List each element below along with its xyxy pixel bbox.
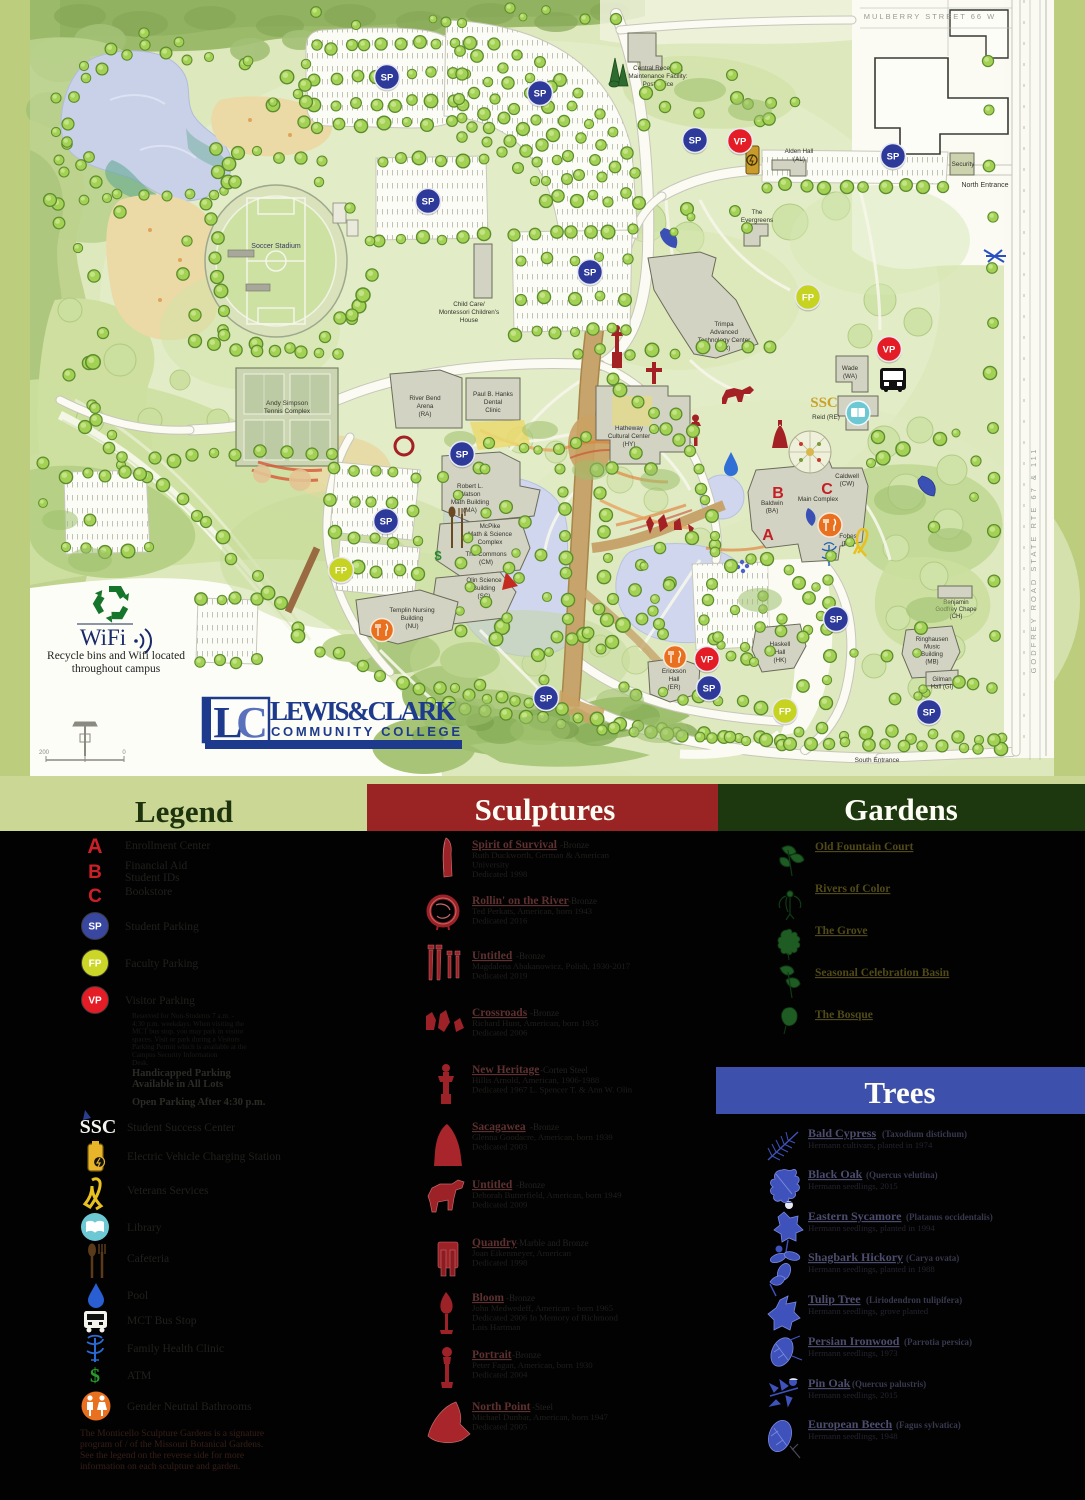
svg-text:-Marble and Bronze: -Marble and Bronze bbox=[516, 1238, 588, 1248]
svg-text:The Grove: The Grove bbox=[815, 925, 868, 937]
svg-text:program of / of the Missouri B: program of / of the Missouri Botanical G… bbox=[80, 1439, 263, 1450]
svg-text:Richard Hunt, American, born 1: Richard Hunt, American, born 1935 bbox=[472, 1018, 599, 1028]
svg-text:SP: SP bbox=[381, 73, 394, 84]
svg-text:-Bronze: -Bronze bbox=[530, 1122, 559, 1132]
svg-text:Black Oak: Black Oak bbox=[808, 1167, 863, 1181]
svg-text:Trees: Trees bbox=[864, 1075, 935, 1110]
svg-text:throughout campus: throughout campus bbox=[72, 663, 161, 675]
svg-text:-Bronze: -Bronze bbox=[516, 951, 545, 961]
svg-text:Sculptures: Sculptures bbox=[475, 792, 616, 827]
svg-text:-Bronze: -Bronze bbox=[512, 1350, 541, 1360]
svg-text:(Fagus sylvatica): (Fagus sylvatica) bbox=[896, 1420, 961, 1430]
svg-text:FP: FP bbox=[779, 707, 792, 718]
svg-text:Hall (GI): Hall (GI) bbox=[931, 684, 954, 691]
svg-text:Arena: Arena bbox=[417, 403, 434, 410]
svg-text:European Beech: European Beech bbox=[808, 1417, 892, 1431]
svg-text:-Bronze: -Bronze bbox=[506, 1293, 535, 1303]
svg-text:SSC: SSC bbox=[80, 1116, 117, 1138]
svg-text:Baldwin: Baldwin bbox=[761, 500, 784, 507]
svg-text:Legend: Legend bbox=[135, 794, 233, 829]
svg-text:Reid (RE): Reid (RE) bbox=[812, 414, 840, 421]
svg-text:McPike: McPike bbox=[480, 523, 501, 530]
svg-text:-Bronze: -Bronze bbox=[560, 840, 589, 850]
svg-text:-Bronze: -Bronze bbox=[568, 896, 597, 906]
svg-text:Hermann cultivars, planted in: Hermann cultivars, planted in 1974 bbox=[808, 1140, 933, 1150]
svg-text:House: House bbox=[460, 317, 479, 324]
svg-text:200: 200 bbox=[39, 750, 50, 756]
svg-text:Dedicated 2019: Dedicated 2019 bbox=[472, 971, 528, 981]
svg-text:Michael Dunbar, American, born: Michael Dunbar, American, born 1947 bbox=[472, 1412, 609, 1422]
svg-text:SSC: SSC bbox=[810, 395, 838, 411]
svg-text:Hermann seedlings, planted in: Hermann seedlings, planted in 1994 bbox=[808, 1223, 935, 1233]
svg-text:A: A bbox=[87, 835, 102, 858]
svg-text:South Entrance: South Entrance bbox=[855, 757, 900, 764]
svg-text:The Bosque: The Bosque bbox=[815, 1009, 873, 1021]
svg-text:Dedicated 1998: Dedicated 1998 bbox=[472, 869, 528, 879]
svg-text:MCT bus stop, you may park in: MCT bus stop, you may park in visitor bbox=[132, 1028, 244, 1036]
svg-text:Soccer Stadium: Soccer Stadium bbox=[251, 243, 301, 250]
svg-text:B: B bbox=[88, 862, 102, 883]
svg-text:Ringhausen: Ringhausen bbox=[916, 636, 949, 643]
svg-text:River Bend: River Bend bbox=[409, 395, 441, 402]
svg-text:-Bronze: -Bronze bbox=[516, 1180, 545, 1190]
svg-text:VP: VP bbox=[88, 996, 102, 1007]
svg-text:Electric Vehicle Charging Stat: Electric Vehicle Charging Station bbox=[127, 1151, 281, 1163]
svg-text:Hermann seedlings, 1973: Hermann seedlings, 1973 bbox=[808, 1348, 898, 1358]
svg-text:Handicapped Parking: Handicapped Parking bbox=[132, 1068, 232, 1079]
svg-text:Glenna Goodacre, American, bor: Glenna Goodacre, American, born 1939 bbox=[472, 1132, 613, 1142]
svg-text:Enrollment Center: Enrollment Center bbox=[125, 840, 210, 852]
svg-text:SP: SP bbox=[540, 694, 553, 705]
svg-text:Tennis Complex: Tennis Complex bbox=[264, 408, 311, 415]
svg-text:Hall: Hall bbox=[775, 649, 786, 656]
svg-text:SP: SP bbox=[887, 152, 900, 163]
svg-text:Advanced: Advanced bbox=[710, 329, 739, 336]
svg-text:Open Parking After 4:30 p.m.: Open Parking After 4:30 p.m. bbox=[132, 1097, 266, 1108]
svg-text:-Corten Steel: -Corten Steel bbox=[540, 1065, 588, 1075]
svg-text:Hillis Arnold, American, 1906-: Hillis Arnold, American, 1906-1988 bbox=[472, 1075, 600, 1085]
svg-text:A: A bbox=[762, 527, 774, 544]
svg-text:Student Parking: Student Parking bbox=[125, 921, 199, 933]
svg-text:Dedicated 1998: Dedicated 1998 bbox=[472, 1258, 528, 1268]
svg-text:Trimpa: Trimpa bbox=[714, 321, 734, 328]
svg-text:SP: SP bbox=[380, 517, 393, 528]
svg-text:Building: Building bbox=[473, 585, 496, 592]
svg-text:Dedicated 2004: Dedicated 2004 bbox=[472, 1370, 528, 1380]
svg-text:Math & Science: Math & Science bbox=[468, 531, 513, 538]
svg-text:C: C bbox=[88, 886, 102, 907]
svg-text:Dental: Dental bbox=[484, 399, 502, 406]
svg-text:-Bronze: -Bronze bbox=[530, 1008, 559, 1018]
svg-text:MULBERRY STREET 66 W: MULBERRY STREET 66 W bbox=[864, 12, 997, 21]
svg-text:Old Fountain Court: Old Fountain Court bbox=[815, 841, 914, 853]
svg-text:Desk.: Desk. bbox=[132, 1059, 149, 1067]
svg-text:Parking Permit which is availa: Parking Permit which is available at the bbox=[132, 1043, 247, 1051]
svg-text:Building: Building bbox=[401, 615, 424, 622]
svg-text:VP: VP bbox=[883, 345, 896, 356]
svg-text:Paul B. Hanks: Paul B. Hanks bbox=[473, 391, 513, 398]
svg-text:Family Health Clinic: Family Health Clinic bbox=[127, 1343, 224, 1355]
svg-text:SP: SP bbox=[703, 684, 716, 695]
svg-text:WiFi: WiFi bbox=[80, 625, 126, 650]
svg-text:SP: SP bbox=[534, 89, 547, 100]
svg-text:Robert L.: Robert L. bbox=[457, 483, 483, 490]
svg-text:Cafeteria: Cafeteria bbox=[127, 1253, 169, 1265]
svg-text:SP: SP bbox=[456, 450, 469, 461]
svg-text:Complex: Complex bbox=[478, 539, 504, 546]
svg-text:Student Success Center: Student Success Center bbox=[127, 1122, 235, 1134]
svg-text:Dedicated 1967 L. Spencer T. &: Dedicated 1967 L. Spencer T. & Ann W. Ol… bbox=[472, 1085, 633, 1095]
svg-text:(Liriodendron tulipifera): (Liriodendron tulipifera) bbox=[866, 1295, 962, 1305]
svg-text:Shagbark Hickory: Shagbark Hickory bbox=[808, 1250, 903, 1264]
svg-text:Gilman: Gilman bbox=[932, 676, 951, 683]
svg-text:ATM: ATM bbox=[127, 1370, 151, 1382]
svg-text:Dedicated 2009: Dedicated 2009 bbox=[472, 1200, 528, 1210]
svg-text:Gardens: Gardens bbox=[844, 792, 958, 827]
svg-text:Clinic: Clinic bbox=[485, 407, 500, 414]
svg-text:SP: SP bbox=[88, 922, 102, 933]
svg-text:(AL): (AL) bbox=[793, 156, 805, 163]
svg-text:(ER): (ER) bbox=[668, 684, 681, 691]
svg-text:Visitor Parking: Visitor Parking bbox=[125, 995, 195, 1007]
svg-text:SP: SP bbox=[584, 268, 597, 279]
svg-text:(BA): (BA) bbox=[766, 508, 779, 515]
svg-text:Seasonal Celebration Basin: Seasonal Celebration Basin bbox=[815, 967, 950, 979]
svg-text:Reserved for Non-Students 7 a.: Reserved for Non-Students 7 a.m. - bbox=[132, 1012, 235, 1020]
svg-text:$: $ bbox=[434, 548, 442, 563]
svg-text:Andy Simpson: Andy Simpson bbox=[266, 400, 308, 407]
svg-text:Bookstore: Bookstore bbox=[125, 886, 172, 898]
svg-text:SP: SP bbox=[689, 136, 702, 147]
svg-text:(WA): (WA) bbox=[843, 373, 857, 380]
svg-text:(NU): (NU) bbox=[405, 623, 418, 630]
svg-text:Building: Building bbox=[921, 651, 943, 658]
svg-text:(Quercus palustris): (Quercus palustris) bbox=[852, 1379, 926, 1389]
svg-text:$: $ bbox=[90, 1365, 100, 1387]
svg-text:Pin Oak: Pin Oak bbox=[808, 1376, 851, 1390]
svg-text:John Medwedeff, American - bor: John Medwedeff, American - born 1965 bbox=[472, 1303, 614, 1313]
svg-text:Hermann seedlings, 1948: Hermann seedlings, 1948 bbox=[808, 1431, 898, 1441]
svg-text:Ruth Duckworth, German & Ameri: Ruth Duckworth, German & American bbox=[472, 850, 610, 860]
svg-text:SP: SP bbox=[923, 708, 936, 719]
svg-text:Campus Security Information: Campus Security Information bbox=[132, 1051, 218, 1059]
svg-text:(Carya ovata): (Carya ovata) bbox=[906, 1253, 959, 1263]
svg-text:FP: FP bbox=[802, 293, 815, 304]
svg-text:Recycle bins and Wifi located: Recycle bins and Wifi located bbox=[47, 650, 185, 662]
svg-text:Student IDs: Student IDs bbox=[125, 872, 180, 884]
svg-text:(Parrotia persica): (Parrotia persica) bbox=[904, 1337, 972, 1347]
svg-text:SP: SP bbox=[830, 615, 843, 626]
svg-text:Hermann seedlings, 2015: Hermann seedlings, 2015 bbox=[808, 1181, 898, 1191]
svg-text:Main Complex: Main Complex bbox=[798, 496, 839, 503]
svg-text:Security: Security bbox=[952, 161, 976, 168]
svg-text:Hall: Hall bbox=[669, 676, 680, 683]
svg-text:(CW): (CW) bbox=[840, 481, 855, 488]
svg-text:MCT Bus Stop: MCT Bus Stop bbox=[127, 1315, 197, 1327]
svg-text:Dedicated 2003: Dedicated 2003 bbox=[472, 1142, 528, 1152]
svg-text:(Quercus velutina): (Quercus velutina) bbox=[866, 1170, 938, 1180]
svg-text:North Entrance: North Entrance bbox=[961, 182, 1008, 189]
svg-text:Maintenance Facility:: Maintenance Facility: bbox=[628, 73, 687, 80]
svg-text:Library: Library bbox=[127, 1222, 162, 1234]
svg-text:Financial Aid: Financial Aid bbox=[125, 860, 188, 872]
svg-text:VP: VP bbox=[734, 137, 747, 148]
svg-text:Magdalena Abakanowicz, Polish,: Magdalena Abakanowicz, Polish, 1930-2017 bbox=[472, 961, 631, 971]
svg-text:Hatheway: Hatheway bbox=[615, 425, 644, 432]
svg-text:The: The bbox=[752, 209, 763, 216]
svg-text:FP: FP bbox=[335, 566, 348, 577]
svg-text:GODFREY ROAD STATE RT: GODFREY ROAD STATE RTE 67 & 111 bbox=[1029, 447, 1038, 674]
svg-text:Hermann seedlings, grove plant: Hermann seedlings, grove planted bbox=[808, 1306, 929, 1316]
svg-text:COMMUNITY COLLEGE: COMMUNITY COLLEGE bbox=[271, 724, 461, 739]
svg-text:information on each sculpture: information on each sculpture and garden… bbox=[80, 1461, 240, 1472]
svg-text:Hermann seedlings, 2015: Hermann seedlings, 2015 bbox=[808, 1390, 898, 1400]
svg-text:(Platanus occidentalis): (Platanus occidentalis) bbox=[906, 1212, 993, 1222]
svg-text:Montessori Children's: Montessori Children's bbox=[439, 309, 499, 316]
svg-text:Available in All Lots: Available in All Lots bbox=[132, 1079, 223, 1090]
svg-text:The Monticello Sculpture Garde: The Monticello Sculpture Gardens is a si… bbox=[80, 1429, 264, 1439]
svg-text:Wade: Wade bbox=[842, 365, 859, 372]
svg-text:(MB): (MB) bbox=[925, 659, 938, 666]
svg-text:SP: SP bbox=[422, 197, 435, 208]
svg-text:Gender Neutral Bathrooms: Gender Neutral Bathrooms bbox=[127, 1401, 252, 1413]
svg-text:Rivers of Color: Rivers of Color bbox=[815, 883, 890, 895]
svg-text:University: University bbox=[472, 860, 510, 870]
svg-text:spaces. Visit or park during a: spaces. Visit or park during a Visitors bbox=[132, 1035, 240, 1043]
svg-text:Templin Nursing: Templin Nursing bbox=[389, 607, 435, 614]
svg-text:LEWIS&CLARK: LEWIS&CLARK bbox=[270, 696, 456, 726]
svg-text:See the legend on the reverse: See the legend on the reverse side for m… bbox=[80, 1450, 244, 1461]
svg-text:Joan Eikenmeyer, American: Joan Eikenmeyer, American bbox=[472, 1248, 572, 1258]
svg-text:Ted Perkats, American, born 19: Ted Perkats, American, born 1943 bbox=[472, 906, 593, 916]
svg-text:Pool: Pool bbox=[127, 1290, 148, 1302]
svg-text:Bald Cypress: Bald Cypress bbox=[808, 1126, 876, 1140]
svg-text:Dedicated 2005: Dedicated 2005 bbox=[472, 1422, 528, 1432]
svg-text:Lois Hartman: Lois Hartman bbox=[472, 1322, 521, 1332]
svg-text:-Steel: -Steel bbox=[532, 1402, 553, 1412]
svg-text:Dedicated 2006 In Memory of Ri: Dedicated 2006 In Memory of Richmond bbox=[472, 1313, 618, 1323]
svg-text:VP: VP bbox=[701, 655, 714, 666]
svg-text:Caldwell: Caldwell bbox=[835, 473, 859, 480]
svg-text:C: C bbox=[236, 698, 268, 747]
svg-text:Dedicated 2006: Dedicated 2006 bbox=[472, 1028, 528, 1038]
svg-text:Tulip Tree: Tulip Tree bbox=[808, 1292, 861, 1306]
svg-text:4:30 p.m. weekdays. When visit: 4:30 p.m. weekdays. When visiting the bbox=[132, 1020, 244, 1028]
svg-text:(CM): (CM) bbox=[479, 559, 493, 566]
svg-text:Peter Fagan, American, born 19: Peter Fagan, American, born 1930 bbox=[472, 1360, 593, 1370]
svg-text:Cultural Center: Cultural Center bbox=[608, 433, 650, 440]
svg-text:Dedicated 2016: Dedicated 2016 bbox=[472, 916, 528, 926]
svg-text:Music: Music bbox=[924, 644, 940, 651]
svg-text:FP: FP bbox=[89, 959, 102, 970]
svg-text:Faculty Parking: Faculty Parking bbox=[125, 958, 198, 970]
svg-text:Deborah Butterfield, American,: Deborah Butterfield, American, born 1949 bbox=[472, 1190, 622, 1200]
svg-text:Persian Ironwood: Persian Ironwood bbox=[808, 1334, 900, 1348]
svg-text:Hermann seedlings, planted in: Hermann seedlings, planted in 1988 bbox=[808, 1264, 935, 1274]
svg-text:Child Care/: Child Care/ bbox=[453, 301, 485, 308]
svg-text:(HK): (HK) bbox=[774, 657, 787, 664]
svg-text:Alden Hall: Alden Hall bbox=[785, 148, 814, 155]
svg-text:(Taxodium distichum): (Taxodium distichum) bbox=[882, 1129, 967, 1139]
svg-text:(RA): (RA) bbox=[419, 411, 432, 418]
svg-text:Veterans Services: Veterans Services bbox=[127, 1185, 209, 1197]
svg-text:Eastern Sycamore: Eastern Sycamore bbox=[808, 1209, 902, 1223]
